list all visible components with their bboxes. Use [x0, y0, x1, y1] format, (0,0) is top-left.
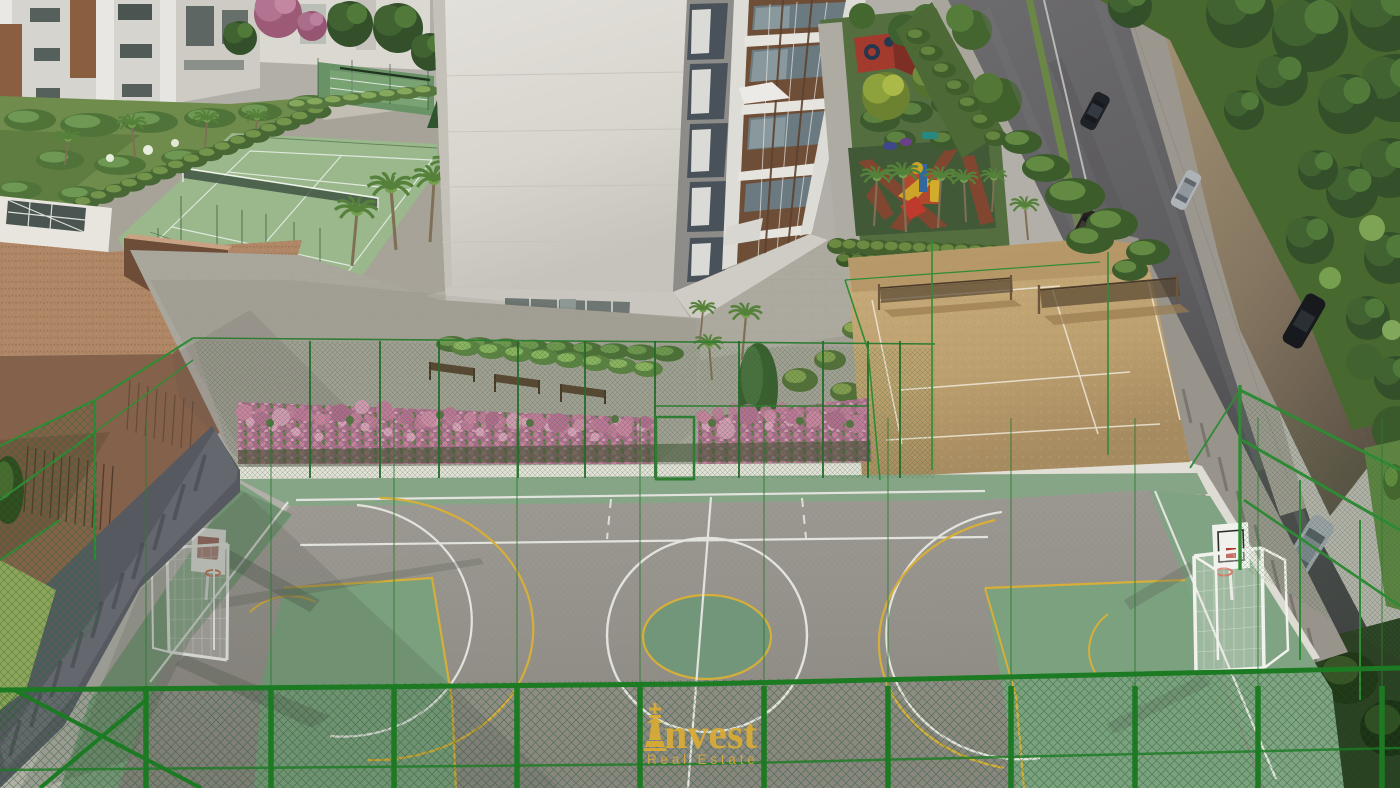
svg-text:Real Estate: Real Estate: [647, 752, 759, 767]
